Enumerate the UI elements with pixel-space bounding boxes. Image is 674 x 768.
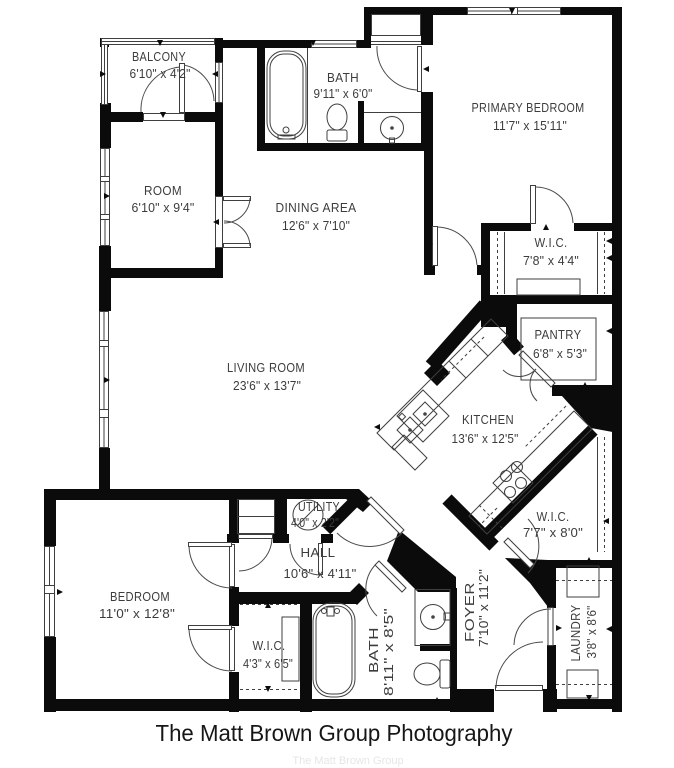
svg-text:UTILITY: UTILITY [298,499,340,514]
svg-text:The Matt Brown Group Photograp: The Matt Brown Group Photography [156,720,513,746]
svg-text:DINING AREA: DINING AREA [276,200,357,215]
svg-text:ROOM: ROOM [144,183,182,198]
svg-text:KITCHEN: KITCHEN [462,412,514,427]
svg-text:4'0" x 2'2": 4'0" x 2'2" [291,516,339,530]
svg-text:4'3" x 6'5": 4'3" x 6'5" [243,657,293,671]
svg-text:BATH: BATH [366,627,381,673]
svg-text:HALL: HALL [301,545,336,560]
svg-text:6'10" x 4'2": 6'10" x 4'2" [130,67,191,81]
svg-text:W.I.C.: W.I.C. [535,235,568,250]
svg-text:LIVING ROOM: LIVING ROOM [227,360,305,375]
svg-text:BEDROOM: BEDROOM [110,589,170,604]
svg-text:PRIMARY BEDROOM: PRIMARY BEDROOM [472,100,585,115]
svg-text:3'8" x 8'6": 3'8" x 8'6" [585,606,599,659]
svg-text:11'7" x 15'11": 11'7" x 15'11" [493,119,567,133]
svg-text:13'6" x 12'5": 13'6" x 12'5" [452,432,519,446]
svg-text:23'6" x 13'7": 23'6" x 13'7" [233,379,301,393]
svg-text:7'8" x 4'4": 7'8" x 4'4" [523,254,579,268]
svg-text:6'8" x 5'3": 6'8" x 5'3" [533,347,587,361]
svg-text:W.I.C.: W.I.C. [537,509,570,524]
svg-text:8'11" x 8'5": 8'11" x 8'5" [382,608,396,696]
svg-text:6'10" x 9'4": 6'10" x 9'4" [132,201,195,215]
svg-text:W.I.C.: W.I.C. [253,638,286,653]
svg-text:The Matt Brown Group: The Matt Brown Group [292,755,403,767]
svg-text:LAUNDRY: LAUNDRY [568,605,583,662]
svg-text:11'0" x 12'8": 11'0" x 12'8" [99,607,175,621]
svg-text:7'10" x 11'2": 7'10" x 11'2" [477,569,491,647]
svg-text:BALCONY: BALCONY [132,49,186,64]
svg-text:12'6" x 7'10": 12'6" x 7'10" [282,219,350,233]
svg-text:9'11" x 6'0": 9'11" x 6'0" [314,87,373,101]
svg-text:10'6" x 4'11": 10'6" x 4'11" [284,567,357,581]
svg-text:7'7" x 8'0": 7'7" x 8'0" [523,526,583,540]
svg-text:PANTRY: PANTRY [535,327,582,342]
svg-text:FOYER: FOYER [462,582,477,642]
svg-text:BATH: BATH [327,70,359,85]
